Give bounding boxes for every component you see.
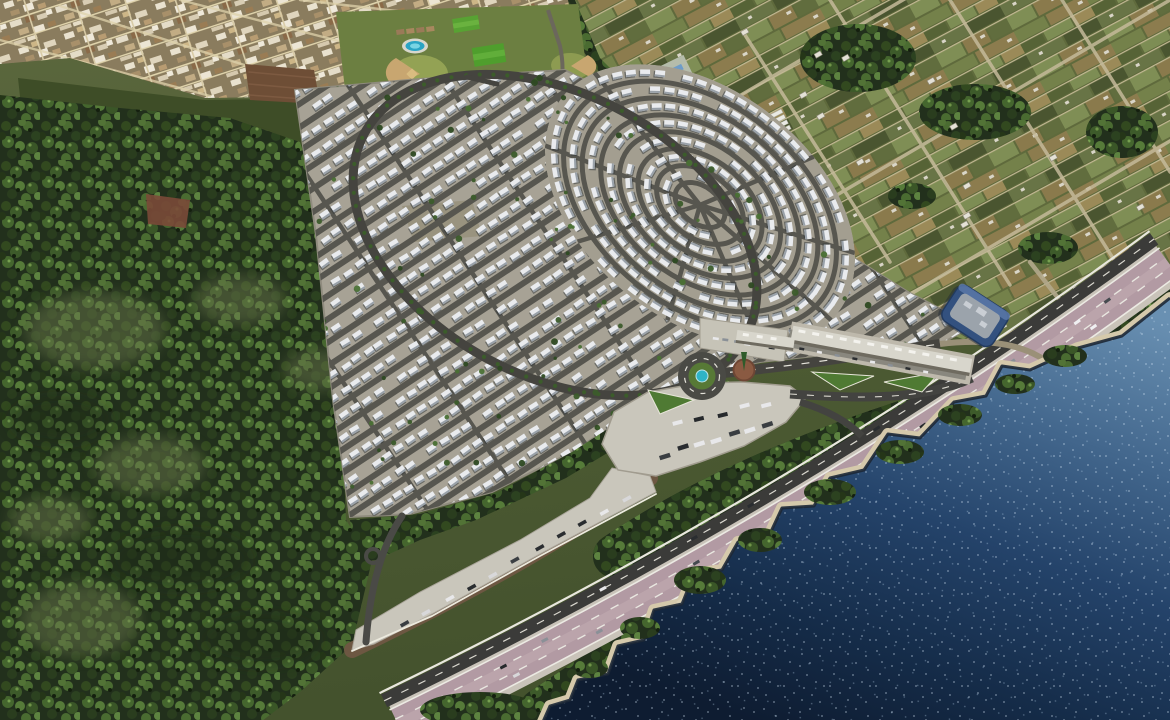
aerial-masterplan-render xyxy=(0,0,1170,720)
screenshot-aerial-render xyxy=(0,0,1170,720)
red-clearing xyxy=(146,194,190,228)
